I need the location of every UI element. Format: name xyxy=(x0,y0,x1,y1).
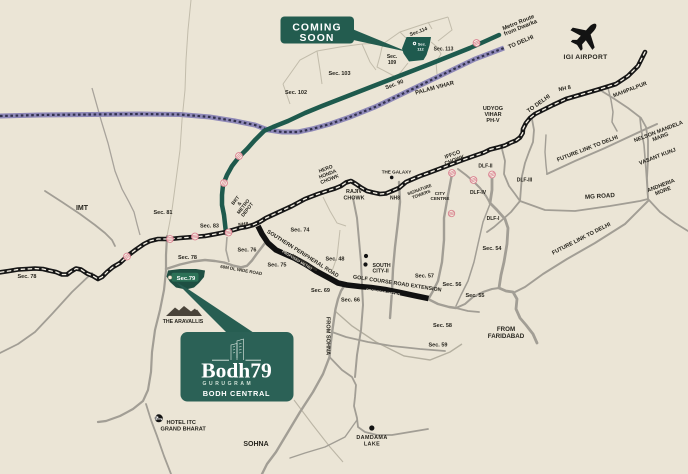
svg-text:NH8: NH8 xyxy=(390,196,400,202)
svg-text:Sec. 78: Sec. 78 xyxy=(178,255,197,261)
svg-text:Bodh79: Bodh79 xyxy=(201,358,272,382)
svg-text:Sec. 56: Sec. 56 xyxy=(443,282,462,288)
svg-text:IGI AIRPORT: IGI AIRPORT xyxy=(564,54,609,61)
svg-text:112: 112 xyxy=(417,47,424,52)
svg-text:GURUGRAM: GURUGRAM xyxy=(203,381,254,387)
svg-text:Sec. 113: Sec. 113 xyxy=(434,47,454,53)
svg-text:Sec. 102: Sec. 102 xyxy=(285,90,307,96)
svg-text:Sec. 76: Sec. 76 xyxy=(238,248,257,254)
svg-text:Sec. 69: Sec. 69 xyxy=(311,288,330,294)
svg-text:Sec. 78: Sec. 78 xyxy=(18,274,37,280)
svg-text:Sec.109: Sec.109 xyxy=(387,54,398,66)
svg-text:BODH CENTRAL: BODH CENTRAL xyxy=(203,389,271,398)
svg-text:DLF-II: DLF-II xyxy=(478,164,493,170)
svg-text:Sec. 54: Sec. 54 xyxy=(483,246,503,252)
svg-text:THE GALAXY: THE GALAXY xyxy=(382,170,412,175)
svg-text:Sec. 81: Sec. 81 xyxy=(154,210,173,216)
svg-text:Sec. 57: Sec. 57 xyxy=(415,274,434,280)
svg-text:Sec. 74: Sec. 74 xyxy=(291,228,311,234)
svg-text:RAJIVCHOWK: RAJIVCHOWK xyxy=(344,189,365,202)
svg-text:Sec.79: Sec.79 xyxy=(177,276,196,282)
svg-text:Sec. 48: Sec. 48 xyxy=(326,257,345,263)
svg-text:IMT: IMT xyxy=(76,205,89,212)
svg-text:Sec. 66: Sec. 66 xyxy=(341,298,360,304)
svg-text:SOHNA: SOHNA xyxy=(243,441,268,448)
svg-text:COMING: COMING xyxy=(292,23,341,34)
svg-text:Sec. 103: Sec. 103 xyxy=(328,71,350,77)
svg-text:Sec. 59: Sec. 59 xyxy=(429,343,448,349)
svg-text:Sec. 58: Sec. 58 xyxy=(433,323,452,329)
svg-text:Sec. 55: Sec. 55 xyxy=(466,293,485,299)
svg-text:Sec. 75: Sec. 75 xyxy=(268,263,287,269)
svg-text:THE ARAVALLIS: THE ARAVALLIS xyxy=(163,319,204,325)
svg-text:DLF-III: DLF-III xyxy=(517,178,533,184)
svg-text:SOON: SOON xyxy=(300,33,335,44)
svg-text:DLF-I: DLF-I xyxy=(487,216,500,222)
svg-text:Sec. 83: Sec. 83 xyxy=(200,224,219,230)
svg-text:FROM SOHNA: FROM SOHNA xyxy=(325,317,331,355)
svg-text:SOUTHCITY-II: SOUTHCITY-II xyxy=(373,263,391,275)
svg-text:DLF-IV: DLF-IV xyxy=(470,190,487,196)
